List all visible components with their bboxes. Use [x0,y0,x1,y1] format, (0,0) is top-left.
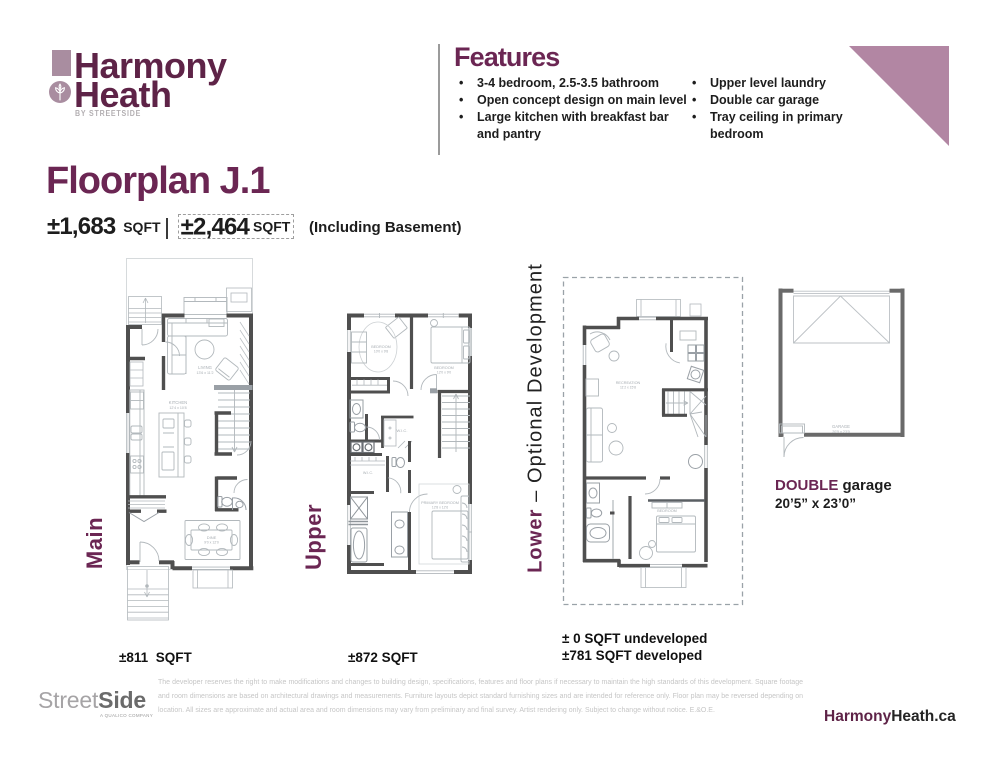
svg-text:9'0 x 12'0: 9'0 x 12'0 [204,541,219,545]
svg-text:11'2 x 15'8: 11'2 x 15'8 [620,386,636,390]
svg-text:BEDROOM: BEDROOM [434,366,454,370]
svg-text:GARAGE: GARAGE [832,424,850,429]
svg-text:12'4 x 10'8: 12'4 x 10'8 [169,406,186,410]
svg-text:12'8 x 12'6: 12'8 x 12'6 [432,506,448,510]
svg-text:RECREATION: RECREATION [616,381,641,385]
svg-text:W.I.C.: W.I.C. [363,471,373,475]
svg-text:BEDROOM: BEDROOM [657,509,677,513]
svg-text:DINE: DINE [207,535,217,540]
svg-text:PRIMARY BEDROOM: PRIMARY BEDROOM [421,501,459,505]
svg-text:12'0 x 9'0: 12'0 x 9'0 [437,371,451,375]
svg-text:13'6 x 11'2: 13'6 x 11'2 [197,371,214,375]
svg-text:W.I.C.: W.I.C. [397,428,408,433]
svg-text:BEDROOM: BEDROOM [371,345,391,349]
svg-text:20'5 x 23'0: 20'5 x 23'0 [832,430,850,434]
svg-text:KITCHEN: KITCHEN [169,400,187,405]
svg-text:LIVING: LIVING [198,365,212,370]
svg-text:10'0 x 9'8: 10'0 x 9'8 [374,350,388,354]
